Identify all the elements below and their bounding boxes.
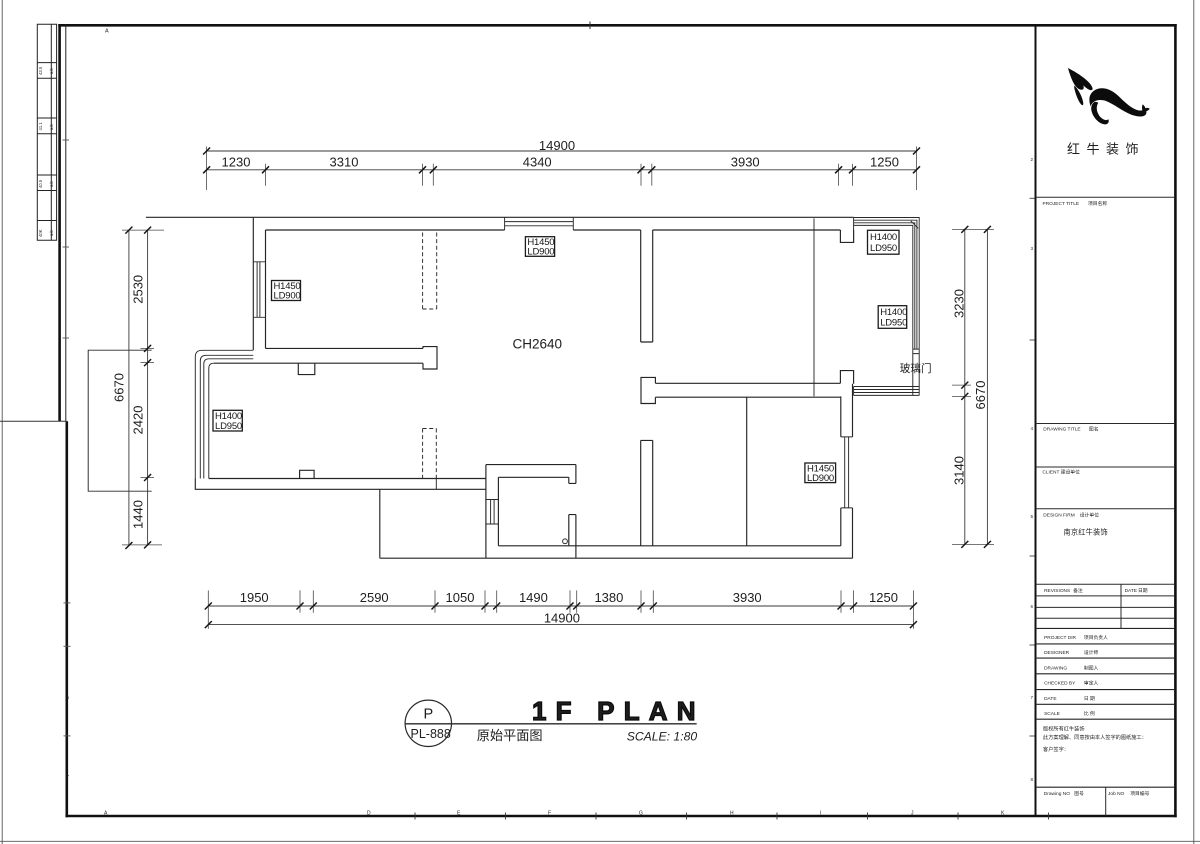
svg-text:G: G bbox=[639, 811, 643, 817]
svg-text:CLIENT: CLIENT bbox=[1042, 470, 1059, 476]
svg-text:制图人: 制图人 bbox=[1084, 665, 1099, 672]
svg-text:DRAWING TITLE: DRAWING TITLE bbox=[1043, 427, 1080, 433]
svg-text:14900: 14900 bbox=[539, 138, 575, 153]
svg-text:审定人: 审定人 bbox=[1084, 680, 1099, 687]
svg-text:日期: 日期 bbox=[1138, 588, 1148, 594]
svg-text:Drawing NO: Drawing NO bbox=[1044, 791, 1070, 797]
svg-text:图名: 图名 bbox=[1089, 426, 1099, 433]
svg-text:LD900: LD900 bbox=[274, 291, 301, 302]
svg-text:40K: 40K bbox=[38, 229, 43, 237]
svg-text:PL-888: PL-888 bbox=[411, 727, 451, 741]
svg-text:项目负责人: 项目负责人 bbox=[1084, 634, 1108, 641]
svg-text:3140: 3140 bbox=[952, 456, 967, 485]
svg-text:备注: 备注 bbox=[1073, 587, 1083, 594]
svg-text:LD900: LD900 bbox=[807, 473, 834, 484]
svg-text:客户签字：: 客户签字： bbox=[1043, 745, 1069, 753]
svg-text:3930: 3930 bbox=[731, 154, 760, 169]
svg-text:1050: 1050 bbox=[446, 590, 475, 605]
svg-text:14900: 14900 bbox=[544, 610, 580, 625]
svg-text:2530: 2530 bbox=[131, 275, 146, 304]
svg-text:H1400: H1400 bbox=[880, 307, 907, 318]
svg-text:SCALE: 1:80: SCALE: 1:80 bbox=[627, 730, 698, 744]
svg-text:41.1: 41.1 bbox=[38, 122, 43, 131]
svg-text:1250: 1250 bbox=[869, 590, 898, 605]
svg-text:I: I bbox=[820, 811, 821, 817]
svg-text:PROJECT DIR: PROJECT DIR bbox=[1044, 635, 1076, 641]
svg-text:6670: 6670 bbox=[973, 381, 988, 410]
svg-text:DRAWING: DRAWING bbox=[1044, 666, 1067, 672]
svg-text:项目名称: 项目名称 bbox=[1088, 200, 1107, 207]
svg-text:D: D bbox=[367, 811, 371, 817]
svg-text:版权所有红牛装饰: 版权所有红牛装饰 bbox=[1043, 725, 1085, 733]
svg-text:a.b: a.b bbox=[49, 124, 54, 130]
svg-text:1490: 1490 bbox=[519, 590, 548, 605]
svg-text:DESIGNER: DESIGNER bbox=[1044, 650, 1070, 656]
svg-text:LD950: LD950 bbox=[215, 421, 242, 432]
svg-text:原始平面图: 原始平面图 bbox=[477, 728, 543, 743]
svg-text:2420: 2420 bbox=[131, 406, 146, 435]
svg-text:比 例: 比 例 bbox=[1084, 710, 1095, 717]
svg-text:P: P bbox=[423, 707, 433, 723]
svg-text:南京红牛装饰: 南京红牛装饰 bbox=[1064, 528, 1108, 537]
svg-text:a.b: a.b bbox=[49, 68, 54, 74]
svg-text:1440: 1440 bbox=[131, 500, 146, 529]
svg-text:设计师: 设计师 bbox=[1084, 649, 1099, 656]
svg-text:DATE: DATE bbox=[1125, 588, 1137, 594]
svg-text:a.b: a.b bbox=[49, 230, 54, 236]
svg-text:1230: 1230 bbox=[222, 154, 251, 169]
svg-text:建设单位: 建设单位 bbox=[1061, 469, 1080, 476]
svg-text:3230: 3230 bbox=[952, 289, 967, 318]
svg-text:REVISIONS: REVISIONS bbox=[1044, 588, 1070, 594]
svg-text:项目编号: 项目编号 bbox=[1130, 790, 1149, 797]
svg-text:Job NO: Job NO bbox=[1108, 791, 1125, 797]
svg-text:F: F bbox=[548, 811, 551, 817]
svg-text:A: A bbox=[105, 29, 109, 35]
svg-text:PROJECT TITLE: PROJECT TITLE bbox=[1043, 201, 1080, 207]
svg-text:红牛装饰: 红牛装饰 bbox=[1067, 142, 1145, 157]
svg-text:a.b: a.b bbox=[49, 181, 54, 187]
svg-text:1250: 1250 bbox=[870, 154, 899, 169]
svg-text:日 期: 日 期 bbox=[1084, 696, 1095, 702]
svg-text:43.5: 43.5 bbox=[38, 66, 43, 75]
svg-text:CHECKED BY: CHECKED BY bbox=[1044, 681, 1076, 687]
svg-text:此方案理解、同意按由本人签字的图纸施工：: 此方案理解、同意按由本人签字的图纸施工： bbox=[1043, 733, 1147, 741]
svg-text:2590: 2590 bbox=[360, 590, 389, 605]
svg-text:3310: 3310 bbox=[330, 154, 359, 169]
svg-text:LD950: LD950 bbox=[870, 243, 897, 254]
svg-text:图号: 图号 bbox=[1074, 791, 1084, 797]
svg-text:4340: 4340 bbox=[523, 154, 552, 169]
svg-text:CH2640: CH2640 bbox=[513, 337, 563, 352]
svg-text:H: H bbox=[730, 811, 734, 817]
svg-text:设计单位: 设计单位 bbox=[1080, 512, 1099, 519]
svg-text:1F PLAN: 1F PLAN bbox=[532, 696, 705, 726]
svg-text:LD900: LD900 bbox=[527, 247, 554, 258]
svg-text:1950: 1950 bbox=[240, 590, 269, 605]
svg-text:H1400: H1400 bbox=[870, 232, 897, 243]
svg-text:LD950: LD950 bbox=[880, 318, 907, 329]
svg-text:1380: 1380 bbox=[594, 590, 623, 605]
svg-text:DATE: DATE bbox=[1044, 696, 1056, 702]
svg-text:DESIGN FIRM: DESIGN FIRM bbox=[1043, 513, 1074, 519]
svg-text:SCALE: SCALE bbox=[1044, 711, 1060, 717]
svg-text:玻璃门: 玻璃门 bbox=[900, 362, 932, 375]
svg-text:40.5: 40.5 bbox=[38, 179, 43, 188]
svg-text:6670: 6670 bbox=[112, 373, 127, 402]
svg-text:3930: 3930 bbox=[733, 590, 762, 605]
